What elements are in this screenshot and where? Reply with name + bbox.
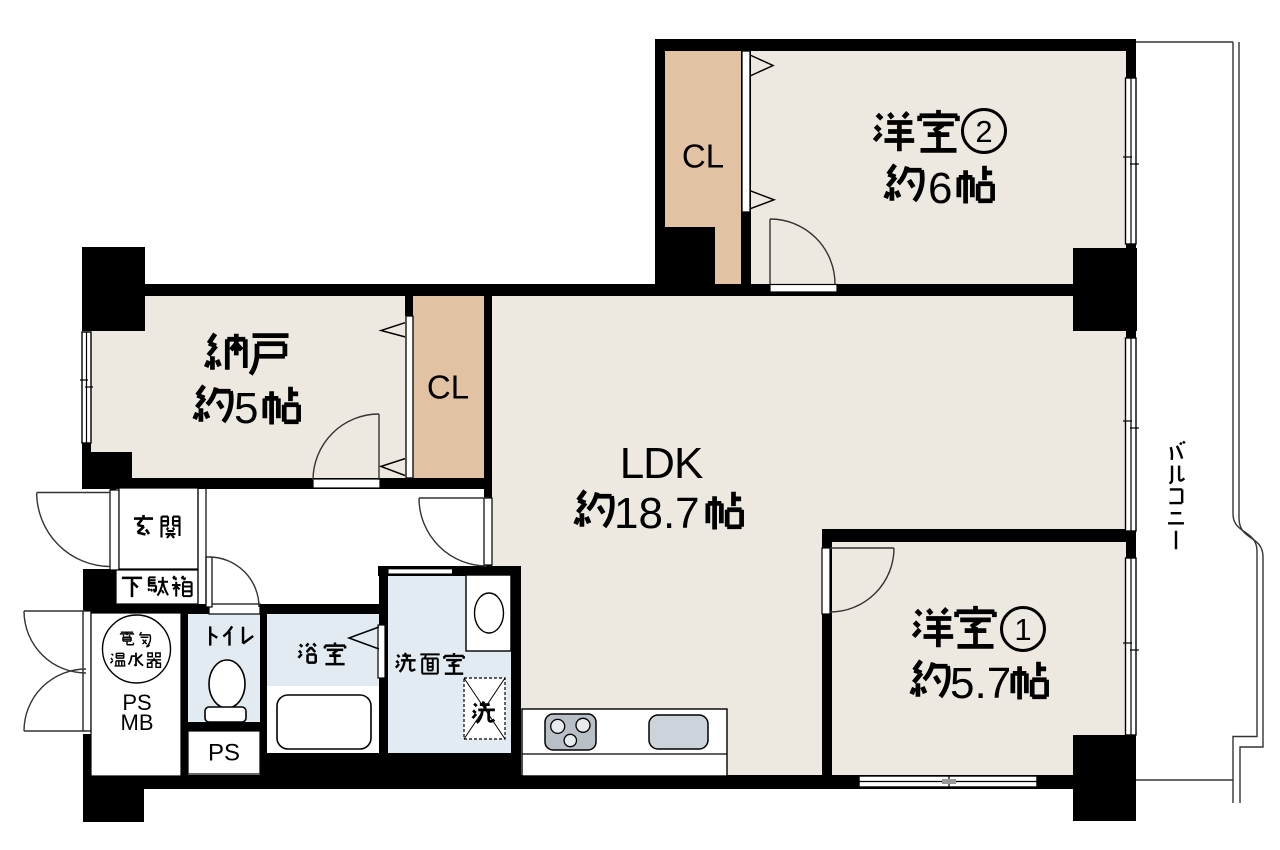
svg-text:LDK: LDK (620, 439, 703, 488)
svg-text:5.7: 5.7 (950, 659, 1011, 708)
svg-text:18.7: 18.7 (614, 489, 700, 538)
svg-text:2: 2 (975, 114, 992, 149)
svg-text:CL: CL (682, 138, 724, 175)
svg-text:CL: CL (427, 369, 469, 406)
svg-text:MB: MB (121, 710, 154, 735)
svg-text:6: 6 (928, 164, 952, 213)
svg-text:5: 5 (234, 384, 258, 433)
svg-text:PS: PS (208, 740, 240, 767)
svg-text:1: 1 (1014, 612, 1031, 647)
